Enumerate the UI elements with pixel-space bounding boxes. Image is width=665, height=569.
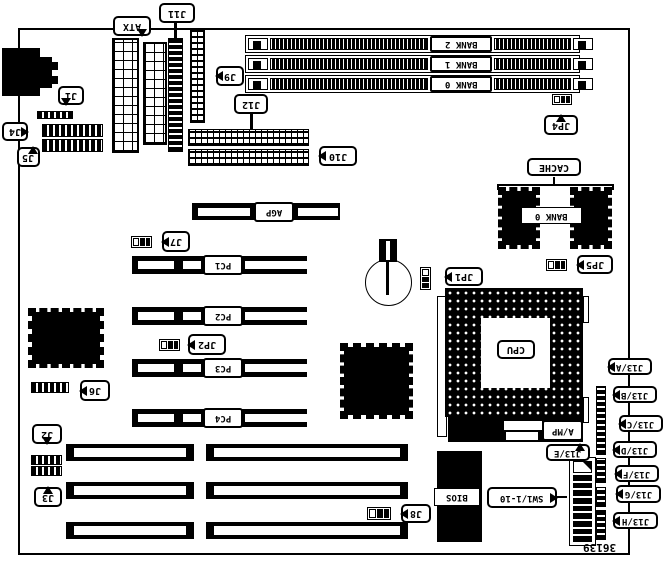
chipset-chip	[28, 308, 104, 368]
j13h-label: J13/H	[613, 512, 658, 529]
keyboard-connector	[52, 76, 58, 84]
j13-header	[596, 510, 606, 540]
j13c-label: J13/C	[619, 415, 663, 432]
j10-connector	[188, 149, 309, 166]
j11-label: J11	[159, 3, 195, 23]
j1-header	[37, 111, 73, 119]
bank0-cache-label: BANK 0	[521, 207, 582, 224]
dimm-clip	[248, 78, 268, 90]
j13b-label: J13/B	[613, 386, 657, 403]
isa-slot	[206, 444, 408, 461]
dimm-slot-bank2: BANK 2	[245, 35, 580, 53]
keyboard-connector	[2, 48, 40, 96]
jp1-label: JP1	[445, 267, 483, 286]
j12-connector	[188, 129, 309, 146]
j7-jumper	[131, 236, 152, 248]
j3-label: J3	[34, 487, 62, 507]
jp5-jumper	[546, 259, 567, 271]
j13e-label: J13/E	[546, 444, 590, 461]
j2-label: J2	[32, 424, 62, 444]
pci-slot-pc3: PC3	[132, 359, 307, 377]
keyboard-connector	[52, 62, 58, 70]
amp-connector-pad	[506, 432, 538, 440]
battery-pin	[386, 262, 389, 295]
j4-header	[42, 124, 103, 137]
j1-label: J1	[58, 86, 84, 105]
bank2-label: BANK 2	[430, 36, 492, 52]
j10-label: J10	[319, 146, 357, 166]
pc4-label: PC4	[203, 408, 243, 428]
j11-connector	[168, 38, 183, 152]
j6-label: J6	[80, 380, 110, 401]
j13f-label: J13/F	[615, 465, 659, 482]
agp-slot: AGP	[192, 203, 340, 220]
jp1-jumper	[420, 267, 431, 290]
cache-brace	[553, 177, 555, 185]
pointer-line	[174, 23, 177, 38]
isa-slot	[206, 482, 408, 499]
pc2-label: PC2	[203, 306, 243, 326]
pci-slot-pc1: PC1	[132, 256, 307, 274]
j9-connector	[190, 30, 205, 123]
j8-label: J8	[401, 504, 431, 523]
atx-power-connector	[112, 38, 139, 153]
dimm-slot-bank1: BANK 1	[245, 55, 580, 73]
socket-tab	[583, 397, 589, 423]
j13d-label: J13/D	[613, 441, 657, 458]
j4-label: J4	[2, 122, 28, 141]
isa-slot	[206, 522, 408, 539]
dimm-clip	[573, 38, 593, 50]
j9-label: J9	[216, 66, 244, 86]
j13-header	[596, 487, 606, 507]
pci-slot-pc2: PC2	[132, 307, 307, 325]
jp2-label: JP2	[188, 334, 226, 355]
dimm-slot-bank0: BANK 0	[245, 75, 580, 93]
j5-label: J5	[17, 147, 40, 167]
j6-header	[31, 382, 69, 393]
chipset-chip	[340, 343, 413, 419]
bios-label: BIOS	[434, 488, 480, 506]
j13-header	[596, 386, 606, 455]
bank1-label: BANK 1	[430, 56, 492, 72]
isa-slot	[66, 482, 194, 499]
isa-slot	[66, 522, 194, 539]
cache-label: CACHE	[527, 158, 581, 176]
agp-label: AGP	[254, 202, 294, 222]
pci-slot-pc4: PC4	[132, 409, 307, 427]
sw1-label: SW1/1-10	[487, 487, 557, 508]
j8-jumper	[367, 507, 391, 520]
j7-label: J7	[162, 231, 190, 252]
pc3-label: PC3	[203, 358, 243, 378]
socket-tab	[583, 296, 589, 323]
isa-slot	[66, 444, 194, 461]
j13g-label: J13/G	[616, 485, 661, 503]
sw1-dip-switch	[569, 457, 596, 546]
cpu-label: CPU	[497, 340, 535, 359]
j3-header	[31, 466, 62, 476]
pc1-label: PC1	[203, 255, 243, 275]
atx-label: ATX	[113, 16, 151, 36]
dimm-clip	[248, 38, 268, 50]
keyboard-connector	[40, 57, 52, 88]
power-connector	[143, 42, 167, 145]
dimm-clip	[573, 58, 593, 70]
jp4-jumper	[552, 94, 572, 105]
part-number: 36139	[583, 541, 616, 554]
dimm-clip	[573, 78, 593, 90]
battery-clip	[386, 241, 390, 260]
j12-label: J12	[234, 94, 268, 114]
j2-header	[31, 455, 62, 465]
pointer-line	[250, 114, 253, 129]
cache-brace	[497, 184, 499, 190]
amp-connector-pad	[504, 421, 542, 430]
dimm-clip	[248, 58, 268, 70]
j13a-label: J13/A	[608, 358, 652, 375]
j13-header	[596, 458, 606, 483]
jp2-jumper	[159, 339, 180, 351]
jp4-label: JP4	[544, 115, 578, 135]
bank0-dimm-label: BANK 0	[430, 76, 492, 92]
jp5-label: JP5	[577, 255, 613, 274]
cache-brace	[612, 184, 614, 190]
cache-brace	[497, 184, 614, 186]
motherboard-diagram: J1 J4 J5 ATX J11 J9 BANK 2 BANK 1 BANK 0…	[0, 0, 665, 569]
j5-header	[42, 139, 103, 152]
